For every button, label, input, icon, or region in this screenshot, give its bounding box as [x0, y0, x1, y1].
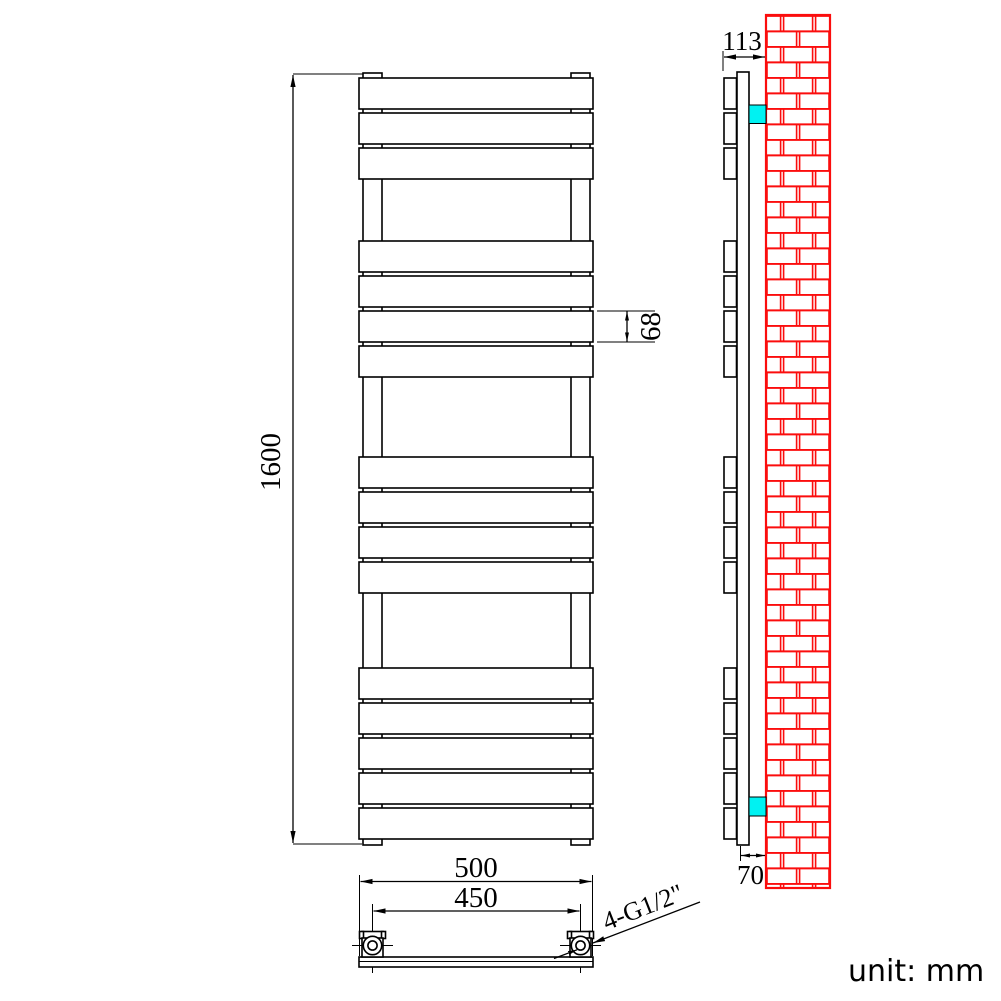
radiator-bar	[359, 311, 593, 342]
dim-label-clearance: 70	[737, 860, 764, 890]
side-panel	[724, 113, 737, 144]
side-panel	[724, 311, 737, 342]
side-panel	[724, 492, 737, 523]
radiator-bar	[359, 241, 593, 272]
pipe-fitting-right	[568, 932, 594, 958]
radiator-bar	[359, 457, 593, 488]
radiator-bar	[359, 346, 593, 377]
pipe-fitting-left	[360, 932, 386, 958]
radiator-bar	[359, 808, 593, 839]
radiator-bar	[359, 527, 593, 558]
side-panel	[724, 148, 737, 179]
front-view: 1600 68	[255, 73, 667, 845]
dim-label-centres: 450	[454, 882, 498, 914]
dim-label-depth: 113	[722, 26, 762, 56]
side-panel	[724, 78, 737, 109]
connection-label: 4-G1/2"	[598, 878, 687, 936]
radiator-bar	[359, 703, 593, 734]
dim-connection-centres: 450	[374, 882, 580, 914]
radiator-bar	[359, 668, 593, 699]
front-bars	[359, 78, 593, 839]
dim-overall-height: 1600	[255, 74, 363, 844]
dim-wall-clearance: 70	[737, 846, 765, 890]
dim-depth: 113	[722, 26, 765, 71]
unit-label: unit: mm	[848, 954, 984, 989]
radiator-bar	[359, 562, 593, 593]
plan-view: 500 450 4-G1/2"	[352, 852, 700, 973]
radiator-bar	[359, 773, 593, 804]
side-panel	[724, 527, 737, 558]
side-panel	[724, 276, 737, 307]
radiator-bar	[359, 113, 593, 144]
radiator-technical-drawing: 1600 68 500 450	[0, 0, 1001, 1001]
side-panel	[724, 457, 737, 488]
side-panel	[724, 346, 737, 377]
wall-bracket-bottom	[749, 797, 766, 816]
radiator-bar	[359, 492, 593, 523]
side-panel	[724, 241, 737, 272]
side-panel	[724, 738, 737, 769]
side-panel	[724, 562, 737, 593]
dim-label-height: 1600	[255, 433, 287, 491]
side-view: 113 70	[722, 15, 830, 890]
radiator-bar	[359, 148, 593, 179]
side-panel	[724, 703, 737, 734]
wall-bracket-top	[749, 105, 766, 124]
radiator-bar	[359, 276, 593, 307]
side-panel	[724, 773, 737, 804]
radiator-bar	[359, 78, 593, 109]
side-panel	[724, 808, 737, 839]
dim-label-bar: 68	[635, 312, 667, 341]
dim-panel-height: 68	[597, 311, 667, 342]
brick-wall	[766, 15, 830, 888]
side-rail	[737, 72, 749, 845]
side-panel	[724, 668, 737, 699]
side-panels	[724, 78, 737, 839]
radiator-bar	[359, 738, 593, 769]
drawing-sheet: 1600 68 500 450	[0, 0, 1001, 1001]
dim-label-width: 500	[454, 852, 498, 884]
